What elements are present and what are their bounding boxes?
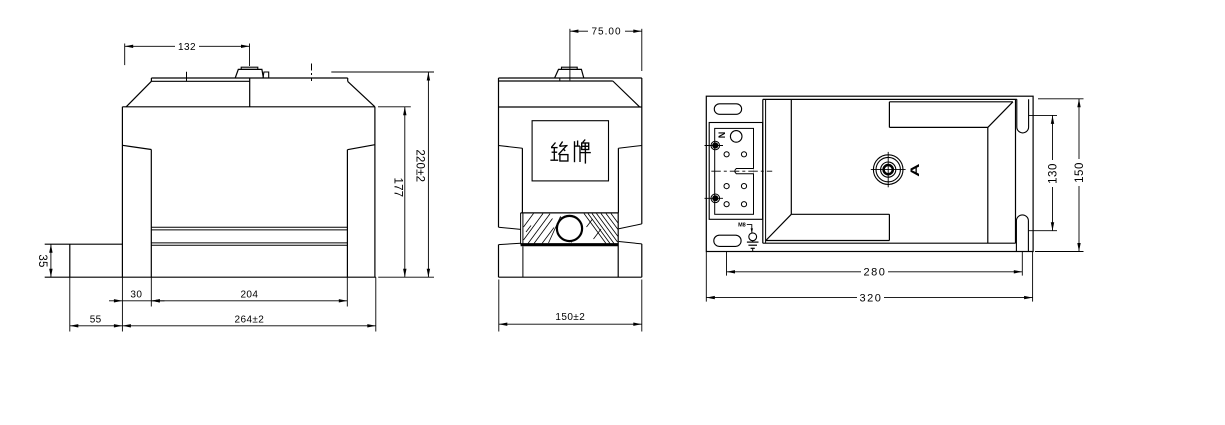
svg-text:220±2: 220±2 bbox=[414, 149, 426, 182]
svg-text:177: 177 bbox=[391, 178, 403, 198]
svg-text:35: 35 bbox=[36, 254, 48, 267]
svg-text:150±2: 150±2 bbox=[555, 312, 585, 323]
svg-text:204: 204 bbox=[240, 289, 258, 300]
svg-text:N: N bbox=[717, 131, 727, 138]
svg-text:55: 55 bbox=[90, 314, 102, 325]
svg-text:130: 130 bbox=[1048, 163, 1060, 184]
svg-text:30: 30 bbox=[130, 289, 142, 300]
svg-text:264±2: 264±2 bbox=[235, 314, 265, 325]
svg-text:320: 320 bbox=[859, 292, 882, 304]
svg-text:280: 280 bbox=[863, 267, 886, 279]
svg-text:150: 150 bbox=[1074, 162, 1086, 183]
svg-text:132: 132 bbox=[178, 42, 196, 53]
svg-text:75.00: 75.00 bbox=[591, 27, 621, 38]
svg-text:M8: M8 bbox=[738, 223, 746, 229]
svg-text:A: A bbox=[908, 163, 922, 177]
